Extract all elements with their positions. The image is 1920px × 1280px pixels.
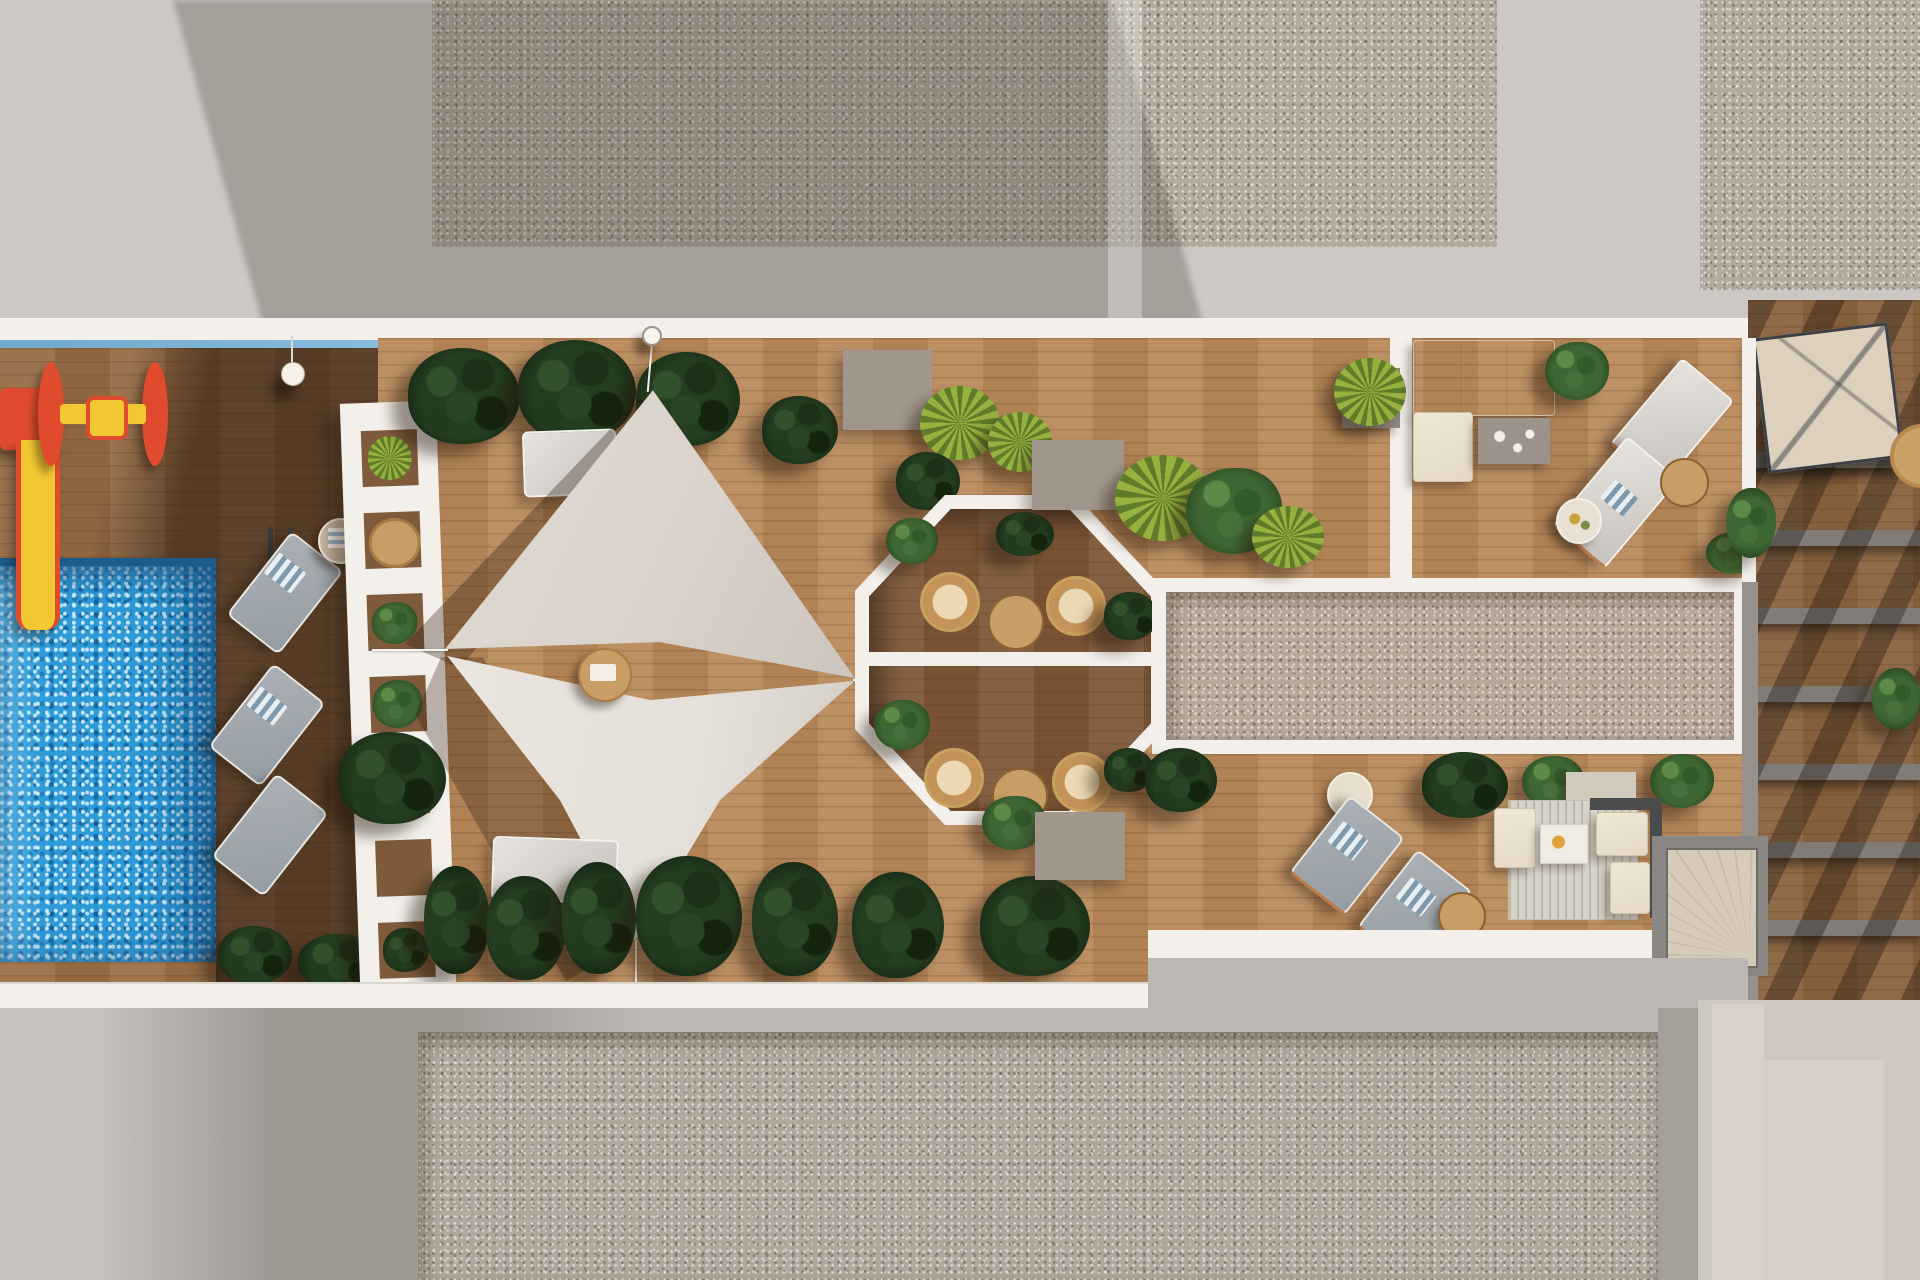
hedge-plant	[636, 856, 742, 976]
octagon-hedge	[886, 518, 938, 564]
roof-panel-inner	[1764, 1060, 1884, 1280]
octagon-hedge	[996, 512, 1054, 556]
hedge-plant	[424, 866, 490, 974]
octagon-hedge	[874, 700, 930, 750]
tropical-plant	[408, 348, 520, 444]
hedge-plant	[562, 862, 636, 974]
sofa-l-horizontal	[1413, 340, 1555, 416]
building-shadow-top	[173, 0, 1207, 340]
round-table	[1660, 458, 1709, 507]
roof-block	[843, 350, 932, 430]
hedge-plant	[752, 862, 838, 976]
roof-block	[1035, 812, 1125, 880]
pergola-opening-plant	[369, 675, 427, 733]
hedge-plant	[980, 876, 1090, 976]
rooftop-render	[0, 0, 1920, 1280]
slide-chute	[16, 440, 60, 630]
hedge-plant	[486, 876, 566, 980]
roller-toy-drum	[86, 396, 128, 440]
sail-cable	[635, 940, 637, 988]
palm-plant	[1334, 358, 1406, 426]
hedge-plant	[338, 732, 446, 824]
terrace-bottom-walkway	[0, 982, 1148, 1010]
roof-panel-strip	[1712, 1004, 1764, 1280]
octagon-divider	[869, 652, 1151, 666]
rattan-chair	[920, 572, 980, 632]
gravel-roof-bottom	[418, 1032, 1658, 1280]
hedge-plant	[852, 872, 944, 978]
roof-bottom-gap	[1148, 958, 1748, 1010]
tray	[590, 664, 616, 681]
tropical-plant	[762, 396, 838, 464]
roof-divider	[1658, 1008, 1698, 1280]
rattan-chair	[1046, 576, 1106, 636]
octagon-hedge	[1104, 592, 1158, 640]
hedge-plant	[218, 926, 292, 984]
gravel-roof-top-right	[1700, 0, 1920, 290]
rattan-chair	[1052, 752, 1112, 812]
concrete-edge-highlight	[1108, 0, 1142, 322]
palm-plant	[1252, 506, 1324, 568]
roof-block	[1032, 440, 1124, 510]
sail-pole	[642, 326, 662, 346]
sail-cable	[372, 649, 448, 651]
pergola-opening-plant	[361, 429, 419, 487]
rattan-chair	[924, 748, 984, 808]
pergola-opening-table	[364, 511, 422, 569]
gravel-frame-fill	[1166, 592, 1734, 740]
pool-deck-strip	[0, 962, 216, 984]
string-light-bulb	[281, 362, 305, 386]
coffee-table	[1478, 418, 1550, 464]
awning-canopy	[1752, 322, 1904, 474]
sofa-cushion	[1494, 808, 1536, 868]
round-table	[988, 594, 1044, 650]
hedge-plant	[1872, 668, 1920, 730]
food-table	[1556, 498, 1602, 544]
stair-treads	[1666, 848, 1758, 968]
hedge-plant	[1726, 488, 1776, 558]
sofa-l-vertical	[1413, 412, 1473, 482]
snack-table	[1540, 824, 1588, 864]
hedge-plant	[1145, 748, 1217, 812]
sofa-cushion	[1596, 812, 1648, 856]
hedge-plant	[1545, 342, 1609, 400]
sofa-cushion	[1610, 862, 1650, 914]
pergola-opening-deck	[375, 839, 433, 897]
